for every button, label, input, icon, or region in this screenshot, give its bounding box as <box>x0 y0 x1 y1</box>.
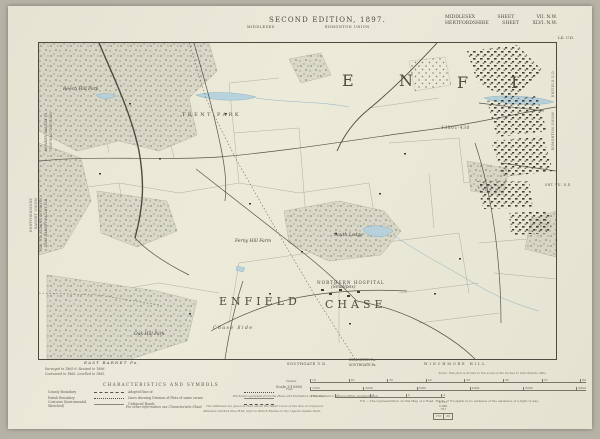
ruler-tick: 50 <box>464 379 470 382</box>
ruler-tick: 3000 <box>417 387 427 390</box>
benchmark-figure: ·761 <box>430 408 456 412</box>
ruler-unit-label: Feet <box>286 387 293 391</box>
survey-note-line: Contoured in 1866. Levelled in 1865. <box>45 372 105 377</box>
survey-notes: Surveyed in 1865-6. Revised in 1896. Con… <box>45 367 105 377</box>
map-artwork <box>39 43 556 359</box>
ruler-tick: 4000 <box>470 387 480 390</box>
scale-ruler: Feet100020003000400050006000 <box>310 387 586 394</box>
bottom-edge-district-label: SOUTHGATE U.D. <box>287 362 327 366</box>
benchmark-box-cell: 178 <box>434 414 444 419</box>
legend-row-description: Adopted line of <box>128 390 240 394</box>
ruler-tick: 3 <box>406 394 410 397</box>
legend-symbol <box>94 398 124 399</box>
altitude-note: Altitudes marked thus B.M. refer to Benc… <box>203 409 321 413</box>
legend-row-description: Lines showing Division of Plots of same … <box>128 396 240 400</box>
ruler-tick: 5000 <box>523 387 533 390</box>
ruler-bar: 100020003000400050006000 <box>310 387 586 391</box>
ruler-tick: 60 <box>503 379 509 382</box>
ruler-bar: 1020304050607080 <box>310 379 586 383</box>
benchmark-box-cell: ·36 <box>444 414 453 419</box>
photo-backdrop: SECOND EDITION, 1897. MIDDLESEX EDMONTON… <box>0 0 600 439</box>
bottom-edge-parish-label: SOUTHGATE Pa. <box>349 363 376 368</box>
legend-title: CHARACTERISTICS AND SYMBOLS <box>66 382 256 387</box>
sheet-word: SHEET <box>502 21 519 27</box>
legend-row-label: Contours (Instrumental, Sketched) <box>48 400 90 408</box>
legend-note: For other information see Characteristic… <box>126 405 202 409</box>
bottom-edge-parish-pair: EDMONTON Pa. SOUTHGATE Pa. <box>349 358 376 367</box>
ruler-tick: 80 <box>580 379 586 382</box>
legend-symbol <box>244 392 274 393</box>
map-frame: ENFIENFIELDCHASETRENT PARKNORTHERN HOSPI… <box>38 42 557 360</box>
edition-subtitle-right: EDMONTON UNION <box>325 25 370 29</box>
ruler-tick: 10 <box>310 379 316 382</box>
altitude-note: The Altitudes are given in Feet above th… <box>206 404 324 408</box>
ruler-tick: 6000 <box>576 387 586 390</box>
benchmark-box: 178·36 <box>433 413 453 420</box>
edition-subtitle-left: MIDDLESEX <box>247 25 275 29</box>
ruler-tick: 20 <box>349 379 355 382</box>
benchmark-figures: 4·7213·960·761178·36 <box>430 401 456 420</box>
bottom-edge-ward-label: WINCHMORE HILL <box>424 362 487 366</box>
scale-note: Scale: this plan is drawn to the scale o… <box>348 371 546 375</box>
sheet-reference-row: HERTFORDSHIRE SHEET XLVI. N.W. <box>445 21 557 27</box>
sheet-number: XLVI. N.W. <box>533 21 557 27</box>
scale-ruler: Chains1020304050607080 <box>310 379 586 386</box>
ruler-unit-label: Chains <box>286 379 296 383</box>
sheet-reference: MIDDLESEX SHEET VII. N.W. HERTFORDSHIRE … <box>445 15 557 27</box>
ruler-tick: 70 <box>542 379 548 382</box>
ruler-tick: 1000 <box>310 387 320 390</box>
ruler-tick: 40 <box>426 379 432 382</box>
corner-note: LD. U.D. <box>558 35 574 40</box>
legend-symbol <box>94 404 124 405</box>
sheet-county: HERTFORDSHIRE <box>445 21 489 27</box>
bottom-edge-parish-label: EAST BARNET Pa. <box>84 360 140 365</box>
bottom-edge-parish-label: EDMONTON Pa. <box>349 358 376 363</box>
legend-symbol <box>94 392 124 393</box>
edition-title: SECOND EDITION, 1897. <box>269 16 386 24</box>
ruler-tick: 30 <box>387 379 393 382</box>
publisher-note: Photozincographed from the Plans and Pub… <box>233 394 379 398</box>
ruler-tick: 2000 <box>363 387 373 390</box>
map-sheet: SECOND EDITION, 1897. MIDDLESEX EDMONTON… <box>8 6 592 429</box>
ruler-tick: 4 <box>441 394 445 397</box>
legend-row-label: County Boundary <box>48 390 90 394</box>
left-margin-county-label: HERTFORDSHIRE <box>29 198 33 232</box>
